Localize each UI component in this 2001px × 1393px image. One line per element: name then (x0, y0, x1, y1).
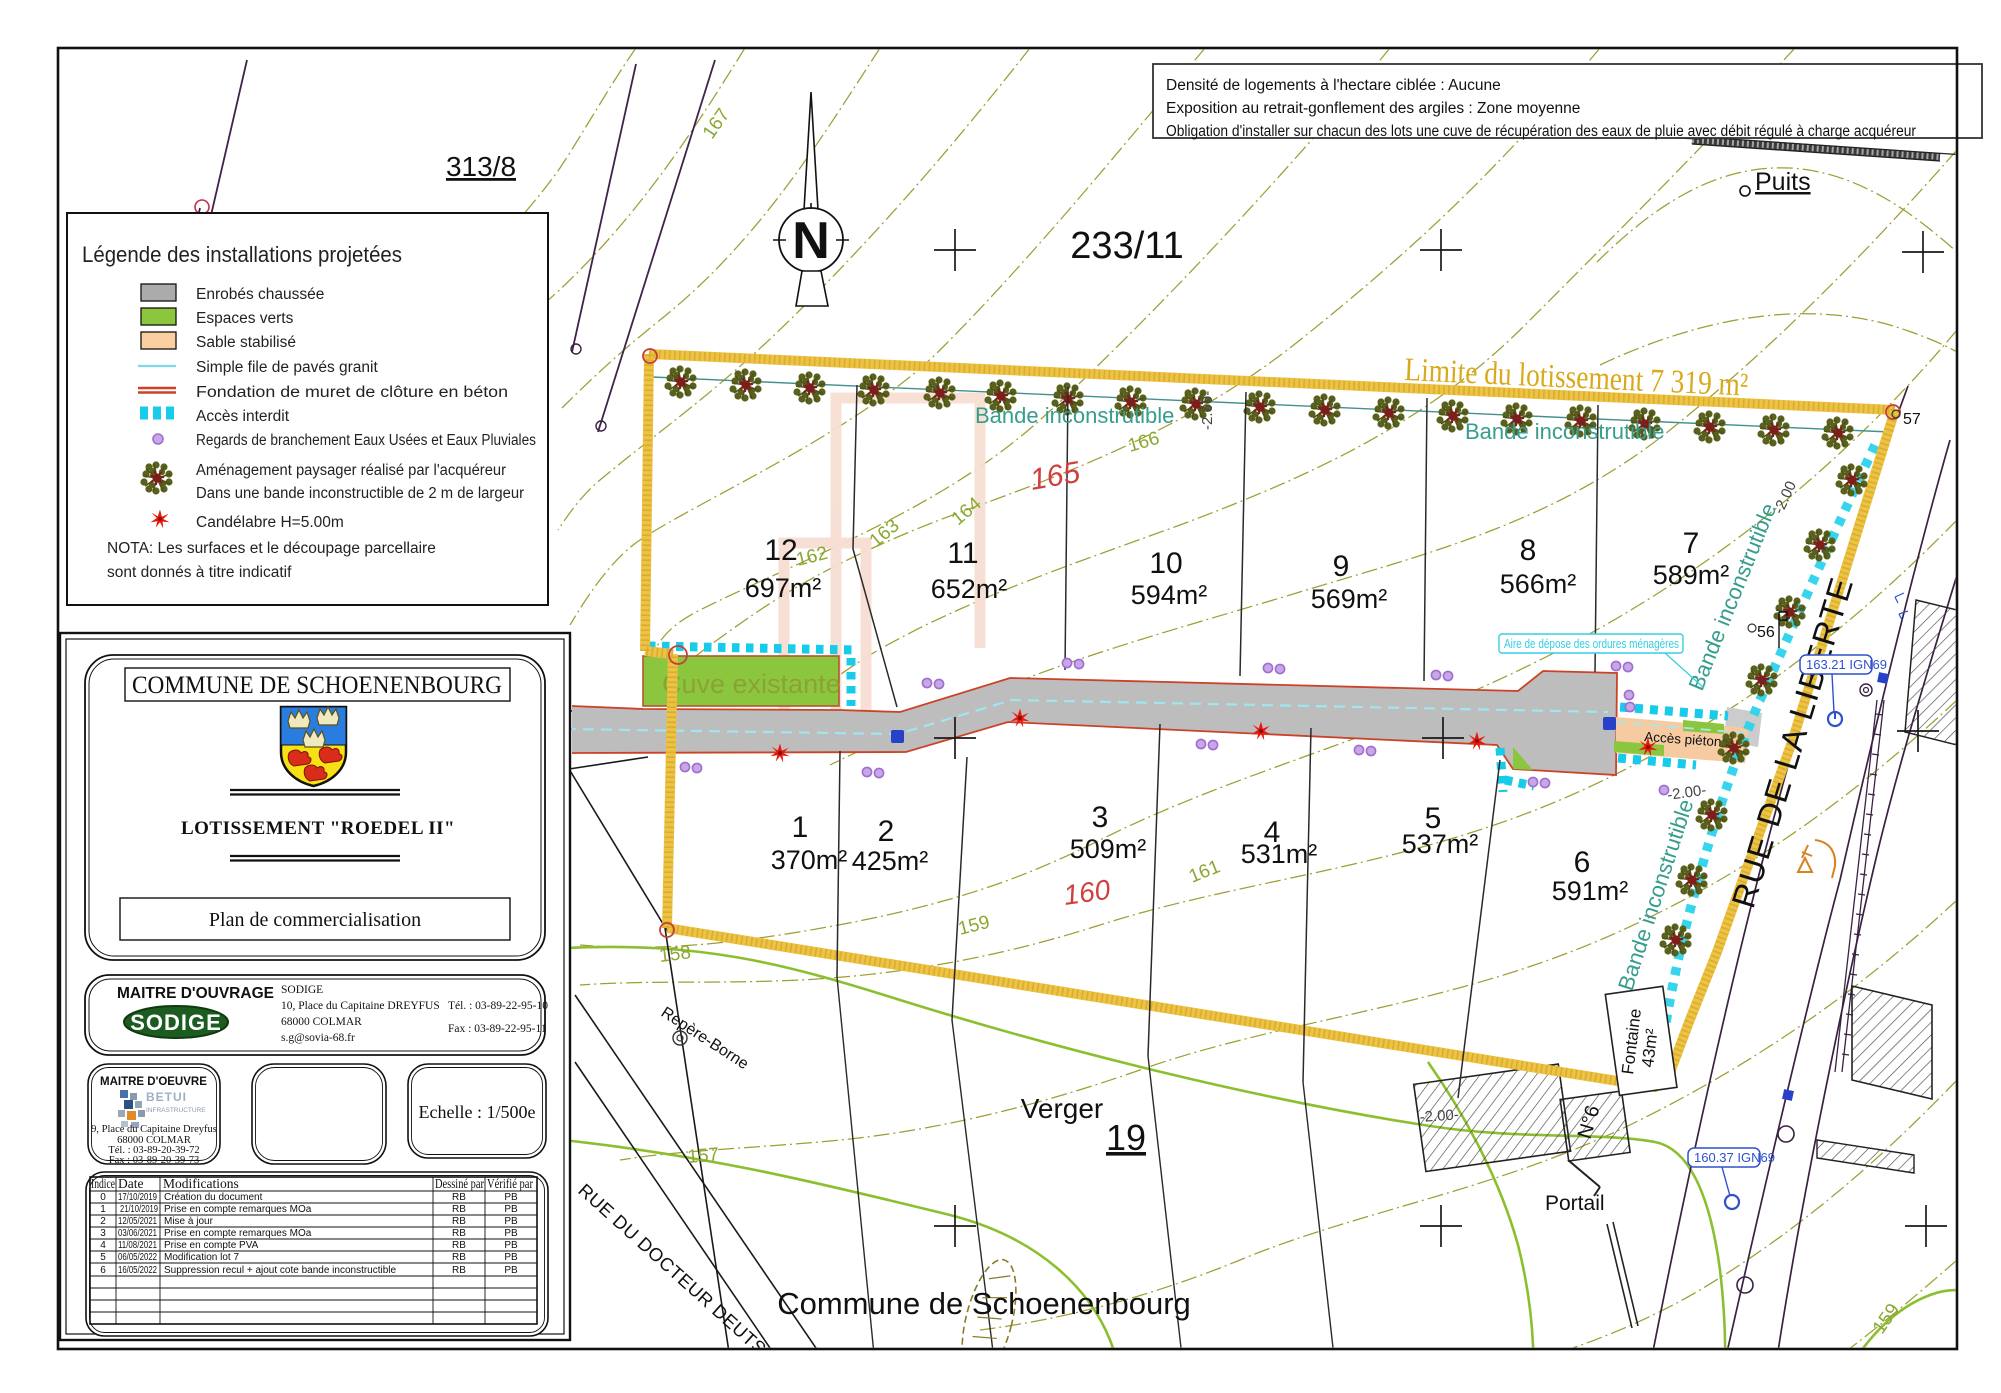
svg-text:sont donnés à titre indicatif: sont donnés à titre indicatif (107, 564, 292, 581)
svg-text:Modification lot 7: Modification lot 7 (164, 1252, 239, 1263)
svg-text:RB: RB (452, 1216, 466, 1227)
svg-text:11/08/2021: 11/08/2021 (118, 1240, 157, 1251)
svg-text:Espaces verts: Espaces verts (196, 310, 294, 327)
svg-text:Portail: Portail (1545, 1192, 1605, 1215)
svg-text:Fax : 03-89-22-95-11: Fax : 03-89-22-95-11 (448, 1023, 547, 1035)
svg-text:Création du document: Création du document (164, 1192, 263, 1203)
svg-text:PB: PB (504, 1265, 518, 1276)
svg-text:BETUI: BETUI (146, 1090, 187, 1104)
svg-text:589m²: 589m² (1653, 560, 1730, 590)
svg-text:160.37 IGN69: 160.37 IGN69 (1694, 1150, 1775, 1165)
svg-text:Bande inconstrutible: Bande inconstrutible (1465, 419, 1664, 444)
svg-text:03/06/2021: 03/06/2021 (118, 1228, 157, 1239)
svg-text:Tél. : 03-89-22-95-10: Tél. : 03-89-22-95-10 (448, 1000, 548, 1012)
svg-text:Dessiné par: Dessiné par (435, 1176, 484, 1191)
svg-text:RB: RB (452, 1192, 466, 1203)
svg-text:313/8: 313/8 (446, 151, 516, 182)
svg-text:NOTA: Les surfaces et le décou: NOTA: Les surfaces et le découpage parce… (107, 540, 436, 557)
svg-text:11: 11 (947, 537, 978, 570)
svg-text:569m²: 569m² (1311, 584, 1388, 614)
svg-text:Indice: Indice (91, 1176, 115, 1191)
svg-text:16/05/2022: 16/05/2022 (118, 1265, 157, 1276)
svg-text:12: 12 (764, 534, 797, 567)
svg-text:Fondation de muret de clôture: Fondation de muret de clôture en béton (196, 384, 508, 401)
svg-text:5: 5 (100, 1252, 106, 1263)
svg-text:2: 2 (878, 815, 895, 848)
svg-text:Sable stabilisé: Sable stabilisé (196, 334, 296, 351)
svg-text:594m²: 594m² (1131, 580, 1208, 610)
svg-text:7: 7 (1683, 527, 1700, 560)
svg-text:Vérifié par: Vérifié par (487, 1176, 533, 1191)
svg-text:Obligation d'installer sur cha: Obligation d'installer sur chacun des lo… (1166, 123, 1916, 140)
svg-text:Commune de Schoenenbourg: Commune de Schoenenbourg (777, 1286, 1191, 1321)
svg-text:Simple file de pavés granit: Simple file de pavés granit (196, 359, 378, 376)
svg-text:Fax : 03-89-20-39-73: Fax : 03-89-20-39-73 (109, 1155, 199, 1166)
svg-text:PB: PB (504, 1216, 518, 1227)
svg-text:425m²: 425m² (852, 846, 929, 876)
svg-text:4: 4 (100, 1240, 106, 1251)
svg-text:MAITRE D'OUVRAGE: MAITRE D'OUVRAGE (117, 985, 274, 1002)
svg-text:Date: Date (118, 1176, 143, 1191)
svg-text:Légende des installations proj: Légende des installations projetées (82, 242, 402, 267)
svg-text:68000 COLMAR: 68000 COLMAR (281, 1016, 362, 1028)
svg-text:Bande inconstrutible: Bande inconstrutible (975, 403, 1174, 428)
svg-text:PB: PB (504, 1192, 518, 1203)
svg-text:Regards de branchement Eaux Us: Regards de branchement Eaux Usées et Eau… (196, 432, 536, 449)
svg-text:56: 56 (1757, 624, 1775, 641)
svg-text:COMMUNE DE SCHOENENBOURG: COMMUNE DE SCHOENENBOURG (132, 672, 502, 699)
svg-text:Echelle : 1/500e: Echelle : 1/500e (419, 1102, 536, 1122)
svg-text:Prise en compte remarques MOa: Prise en compte remarques MOa (164, 1204, 312, 1215)
svg-text:1: 1 (792, 811, 809, 844)
svg-text:566m²: 566m² (1500, 569, 1577, 599)
svg-text:Cuve existante: Cuve existante (662, 669, 841, 699)
svg-text:2: 2 (100, 1216, 106, 1227)
svg-text:509m²: 509m² (1070, 834, 1147, 864)
svg-text:0: 0 (100, 1192, 106, 1203)
svg-text:RB: RB (452, 1252, 466, 1263)
svg-text:Suppression recul + ajout cote: Suppression recul + ajout cote bande inc… (164, 1265, 397, 1276)
svg-text:RB: RB (452, 1228, 466, 1239)
svg-text:8: 8 (1520, 534, 1537, 567)
svg-text:SODIGE: SODIGE (281, 984, 323, 996)
svg-text:PB: PB (504, 1252, 518, 1263)
svg-text:697m²: 697m² (745, 573, 822, 603)
svg-text:531m²: 531m² (1241, 839, 1318, 869)
svg-text:652m²: 652m² (931, 574, 1008, 604)
svg-text:s.g@sovia-68.fr: s.g@sovia-68.fr (281, 1032, 355, 1044)
svg-text:LOTISSEMENT "ROEDEL II": LOTISSEMENT "ROEDEL II" (181, 818, 455, 839)
svg-text:158: 158 (658, 942, 692, 967)
svg-text:Prise en compte remarques MOa: Prise en compte remarques MOa (164, 1228, 312, 1239)
svg-text:Mise à jour: Mise à jour (164, 1216, 214, 1227)
svg-text:3: 3 (1092, 801, 1109, 834)
svg-text:SODIGE: SODIGE (130, 1010, 222, 1035)
svg-text:591m²: 591m² (1552, 876, 1629, 906)
svg-text:Verger: Verger (1021, 1093, 1104, 1124)
svg-text:9: 9 (1333, 550, 1350, 583)
svg-text:Puits: Puits (1755, 168, 1811, 196)
svg-text:PB: PB (504, 1228, 518, 1239)
svg-text:06/05/2022: 06/05/2022 (118, 1252, 157, 1263)
svg-text:RB: RB (452, 1240, 466, 1251)
svg-text:Candélabre H=5.00m: Candélabre H=5.00m (196, 514, 344, 531)
svg-text:370m²: 370m² (771, 845, 848, 875)
svg-text:Modifications: Modifications (163, 1176, 239, 1191)
svg-text:157: 157 (687, 1144, 720, 1168)
svg-text:Dans une bande inconstructible: Dans une bande inconstructible de 2 m de… (196, 485, 524, 502)
svg-text:N: N (792, 212, 830, 270)
svg-text:57: 57 (1903, 411, 1921, 428)
svg-text:-2.00-: -2.00- (1199, 391, 1216, 430)
svg-text:1: 1 (100, 1204, 106, 1215)
svg-text:RB: RB (452, 1265, 466, 1276)
svg-text:Aménagement paysager réalisé p: Aménagement paysager réalisé par l'acqué… (196, 462, 506, 479)
svg-text:Prise en compte PVA: Prise en compte PVA (164, 1240, 259, 1251)
svg-text:Densité de logements à l'hecta: Densité de logements à l'hectare ciblée … (1166, 77, 1501, 94)
svg-text:Exposition au retrait-gonfleme: Exposition au retrait-gonflement des arg… (1166, 100, 1580, 117)
svg-text:10, Place du Capitaine DREYFUS: 10, Place du Capitaine DREYFUS (281, 1000, 440, 1012)
svg-text:MAITRE D'OEUVRE: MAITRE D'OEUVRE (100, 1076, 207, 1088)
svg-text:9, Place du Capitaine Dreyfus: 9, Place du Capitaine Dreyfus (91, 1124, 217, 1135)
svg-text:6: 6 (100, 1265, 106, 1276)
svg-text:Plan de commercialisation: Plan de commercialisation (209, 909, 421, 931)
svg-text:163.21 IGN69: 163.21 IGN69 (1806, 657, 1887, 672)
svg-text:17/10/2019: 17/10/2019 (118, 1192, 157, 1203)
svg-text:233/11: 233/11 (1070, 225, 1183, 267)
svg-text:Accès interdit: Accès interdit (196, 408, 290, 425)
svg-text:10: 10 (1149, 547, 1182, 580)
svg-text:21/10/2019: 21/10/2019 (120, 1204, 158, 1215)
svg-text:Aire de dépose des ordures mén: Aire de dépose des ordures ménagères (1504, 637, 1679, 651)
svg-text:PB: PB (504, 1240, 518, 1251)
svg-text:160: 160 (1062, 874, 1113, 911)
svg-text:6: 6 (1574, 846, 1591, 879)
svg-text:12/05/2021: 12/05/2021 (118, 1216, 157, 1227)
svg-text:19: 19 (1106, 1117, 1146, 1158)
svg-text:Enrobés chaussée: Enrobés chaussée (196, 286, 324, 303)
svg-text:3: 3 (100, 1228, 106, 1239)
svg-text:RB: RB (452, 1204, 466, 1215)
svg-text:537m²: 537m² (1402, 829, 1479, 859)
svg-text:INFRASTRUCTURE: INFRASTRUCTURE (146, 1107, 206, 1114)
svg-text:PB: PB (504, 1204, 518, 1215)
svg-text:-2.00-: -2.00- (1419, 1106, 1459, 1126)
